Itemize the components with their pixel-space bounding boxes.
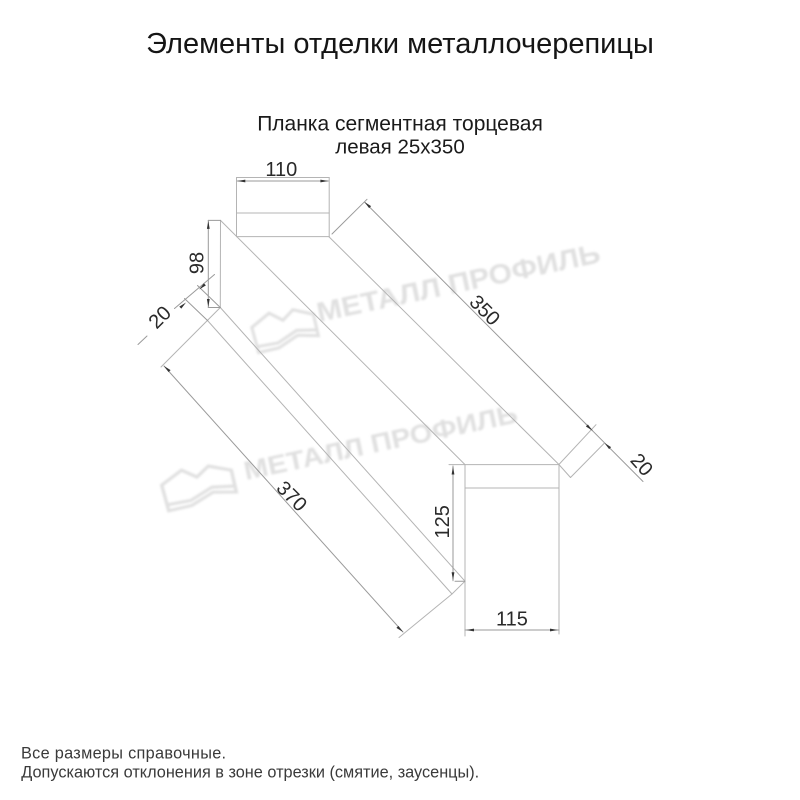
svg-text:98: 98 xyxy=(187,252,209,274)
svg-text:110: 110 xyxy=(265,159,297,181)
svg-text:Допускаются отклонения в зоне: Допускаются отклонения в зоне отрезки (с… xyxy=(21,764,479,782)
svg-text:Все размеры справочные.: Все размеры справочные. xyxy=(21,745,226,763)
svg-text:левая 25х350: левая 25х350 xyxy=(335,136,464,159)
svg-text:125: 125 xyxy=(432,505,454,538)
svg-text:Планка сегментная торцевая: Планка сегментная торцевая xyxy=(257,113,543,136)
svg-text:115: 115 xyxy=(496,609,528,631)
svg-text:Элементы отделки металлочерепи: Элементы отделки металлочерепицы xyxy=(146,28,654,60)
